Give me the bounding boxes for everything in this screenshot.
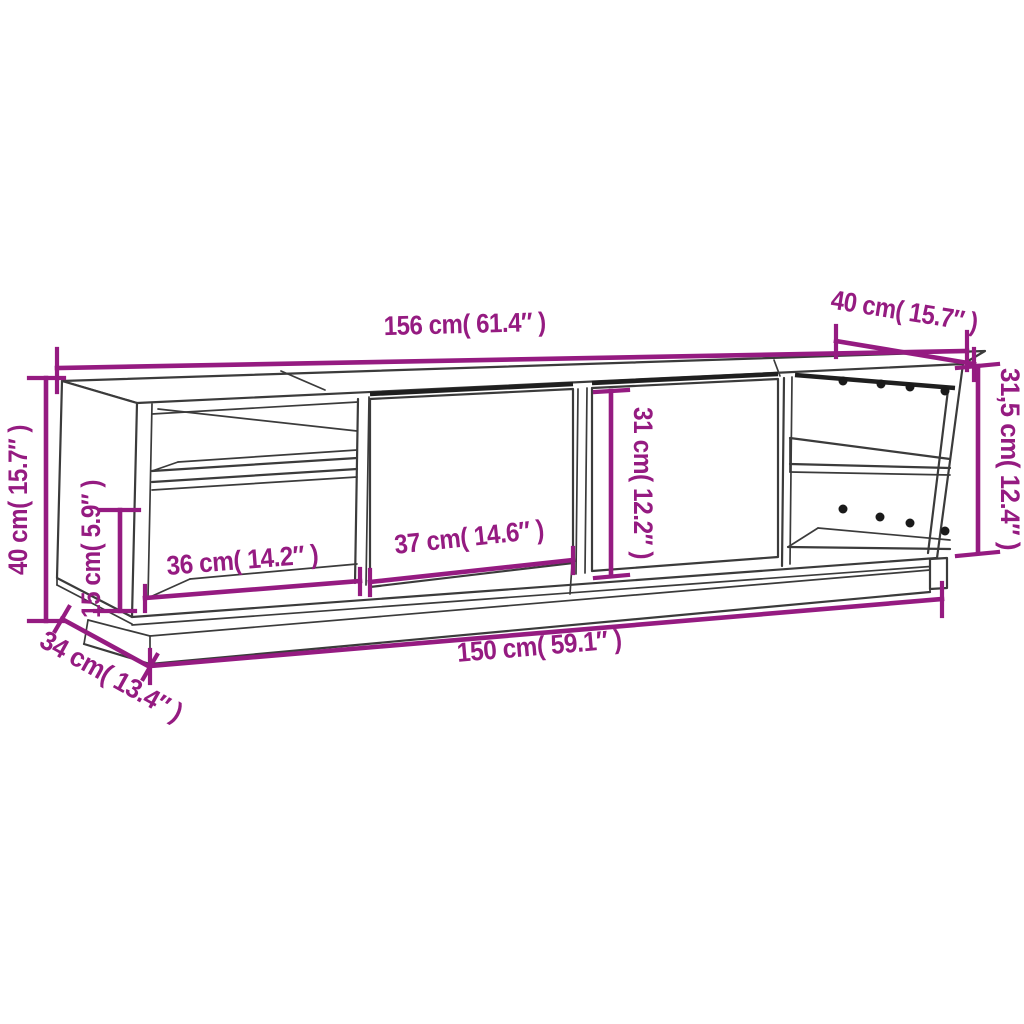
left-shelf-top-edge	[152, 458, 357, 471]
peg-hole-dot	[906, 383, 915, 392]
dim-label-top-depth: 40 cm( 15.7″ )	[829, 285, 980, 338]
bottom-width-dimension: 150 cm( 59.1″ )	[150, 583, 942, 683]
door-right	[592, 379, 778, 571]
right-floor-depth-edge	[788, 528, 818, 547]
dim-label-left-lower-height: 15 cm( 5.9″ )	[76, 480, 106, 618]
left-compartment-width-dimension: 36 cm( 14.2″ )	[145, 539, 360, 611]
divider-left-a	[355, 399, 358, 583]
right-back-panel-top-shadow	[795, 375, 955, 388]
dim-label-right-height: 31,5 cm( 12.4″ )	[995, 368, 1024, 550]
right-height-dimension: 31,5 cm( 12.4″ )	[957, 364, 1024, 556]
tv-stand-drawing	[57, 351, 985, 664]
dim-line	[145, 581, 360, 598]
body-bottom-edge-2	[132, 566, 937, 625]
left-height-dimension: 40 cm( 15.7″ )	[3, 378, 64, 621]
peg-hole-dot	[839, 377, 848, 386]
peg-hole-dot	[941, 387, 950, 396]
peg-hole-dot	[876, 513, 885, 522]
left-back-panel-top-edge	[158, 409, 357, 431]
plinth-left-top-edge	[88, 620, 150, 636]
right-shelf-section	[788, 364, 963, 558]
peg-hole-dot	[877, 380, 886, 389]
door-gap-line-a	[576, 389, 578, 574]
right-shelf-bottom-edge	[790, 472, 950, 475]
base-depth-dimension: 34 cm( 13.4″ )	[35, 607, 188, 728]
dim-tick	[595, 575, 628, 578]
dim-tick	[957, 552, 998, 556]
right-floor-front-edge	[788, 547, 950, 549]
dim-label-bottom-width: 150 cm( 59.1″ )	[456, 624, 623, 668]
left-stile-inner-edge	[148, 404, 152, 598]
left-shelf-front-edge	[152, 469, 357, 482]
peg-hole-dot	[906, 519, 915, 528]
tv-stand-dimension-diagram: 156 cm( 61.4″ ) 40 cm( 15.7″ ) 31,5 cm( …	[0, 0, 1024, 1024]
right-shelf-front-edge	[790, 464, 950, 468]
dim-label-base-depth: 34 cm( 13.4″ )	[35, 625, 188, 728]
dim-tick	[595, 390, 628, 392]
door-gap-line-b	[585, 388, 587, 573]
right-shelf-back-edge	[790, 438, 950, 459]
peg-hole-dot	[941, 527, 950, 536]
divider-right-a	[782, 378, 784, 566]
peg-hole-dot	[839, 505, 848, 514]
dimension-diagram-page: 156 cm( 61.4″ ) 40 cm( 15.7″ ) 31,5 cm( …	[0, 0, 1024, 1024]
divider-left-b	[366, 397, 369, 585]
cabinet-right-edge	[937, 364, 963, 558]
dim-label-left-compartment-width: 36 cm( 14.2″ )	[165, 539, 319, 581]
right-foot	[930, 558, 947, 589]
dim-label-top-width: 156 cm( 61.4″ )	[383, 307, 546, 341]
dim-label-door-height: 31 cm( 12.2″ )	[628, 407, 658, 559]
dim-label-left-height: 40 cm( 15.7″ )	[3, 425, 33, 575]
